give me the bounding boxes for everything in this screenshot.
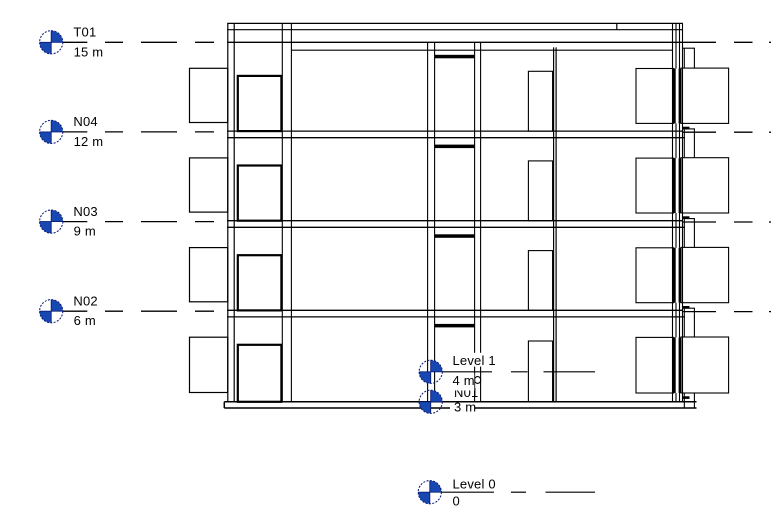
svg-text:9 m: 9 m bbox=[74, 224, 96, 239]
svg-text:6 m: 6 m bbox=[74, 313, 96, 328]
svg-text:0: 0 bbox=[453, 493, 460, 508]
svg-text:Level 1: Level 1 bbox=[453, 353, 496, 368]
svg-text:Level 0: Level 0 bbox=[453, 476, 496, 491]
svg-text:N03: N03 bbox=[73, 204, 97, 219]
svg-text:N04: N04 bbox=[73, 114, 97, 129]
svg-text:4 m: 4 m bbox=[453, 373, 475, 388]
svg-text:N02: N02 bbox=[73, 293, 97, 308]
svg-text:12 m: 12 m bbox=[74, 134, 104, 149]
svg-text:3 m: 3 m bbox=[454, 400, 476, 415]
svg-text:15 m: 15 m bbox=[74, 44, 104, 59]
svg-text:T01: T01 bbox=[73, 25, 96, 40]
